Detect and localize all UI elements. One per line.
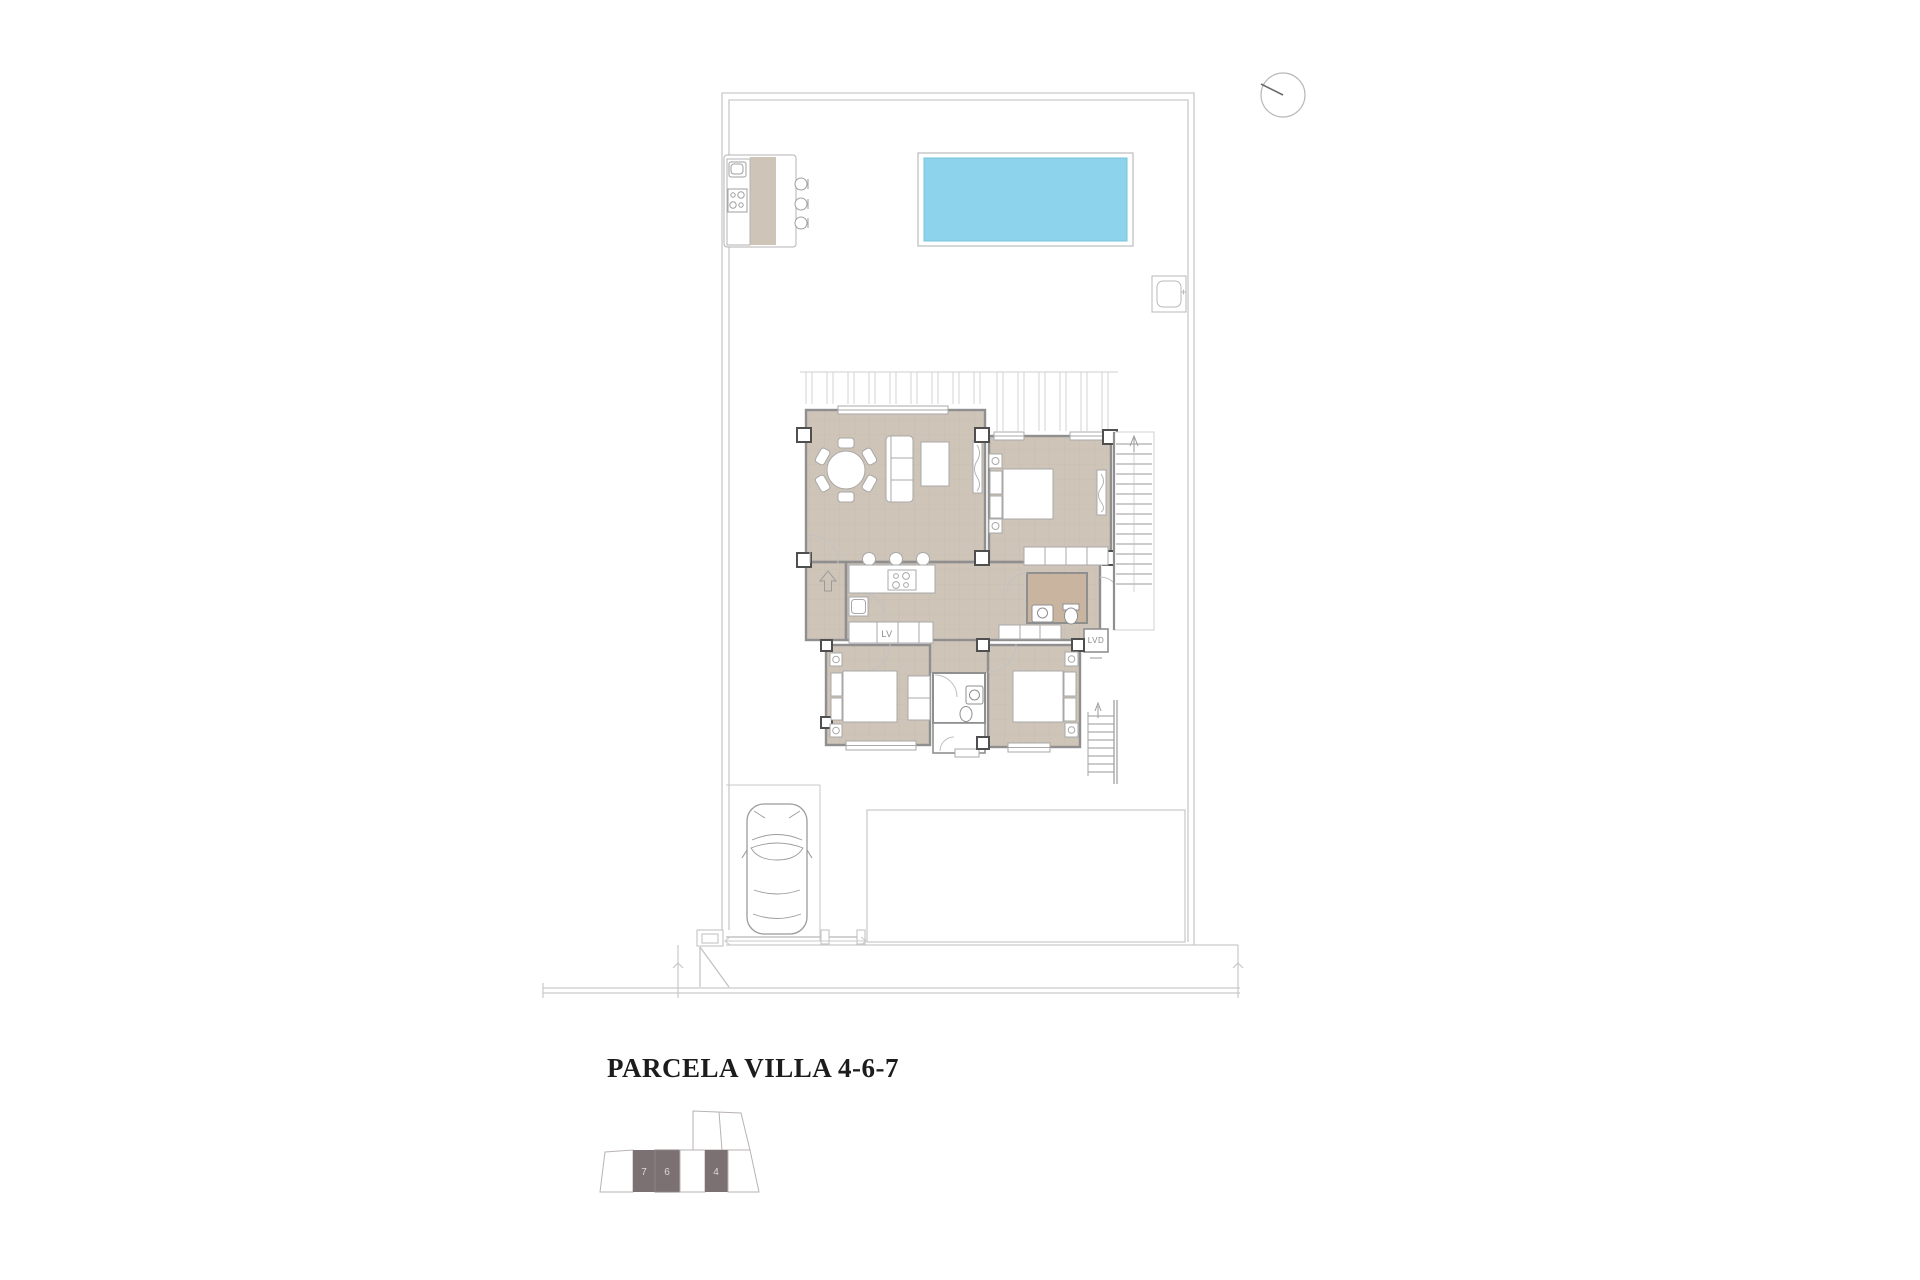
keyplan-plot (728, 1150, 759, 1192)
nightstand (830, 724, 842, 737)
pool-water (924, 158, 1127, 241)
nightstand (1065, 652, 1078, 666)
living-room-right-window (973, 441, 982, 493)
stair-treads (1088, 716, 1114, 772)
dining-chair (838, 492, 854, 502)
parking-area (725, 785, 866, 945)
nightstand (830, 653, 842, 666)
bed-headboard (831, 673, 842, 696)
pillar (977, 737, 989, 749)
cooktop (888, 570, 916, 590)
staircase-garden (1088, 700, 1117, 784)
driveway-gate-swing (700, 947, 729, 987)
washbasin (966, 686, 983, 704)
toilet (960, 707, 972, 722)
pillar (1072, 639, 1084, 651)
nightstand (1065, 723, 1078, 737)
bar-stools (795, 178, 808, 229)
terrace-slab (867, 810, 1185, 942)
bed (1013, 671, 1063, 722)
bed-headboard (831, 698, 842, 720)
bed-headboard (1064, 698, 1076, 721)
bedroom1-right-window (1097, 470, 1106, 515)
living-room-top-window (838, 406, 948, 414)
keyplan-number-4: 4 (713, 1167, 719, 1178)
parking-dimension-line (725, 937, 866, 945)
nightstand (989, 454, 1002, 468)
keyplan-number-6: 6 (664, 1167, 670, 1178)
site-plan-drawing: LV (0, 0, 1920, 1280)
pool (918, 153, 1133, 246)
page-title: PARCELA VILLA 4-6-7 (607, 1053, 899, 1084)
toilet (1065, 608, 1078, 624)
dishwasher-label: LV (881, 629, 892, 639)
dining-chair (838, 438, 854, 448)
stair-side-rail (1114, 700, 1117, 784)
pergola-slats-left (806, 372, 980, 404)
car (742, 804, 812, 934)
pillar (821, 640, 832, 651)
pillar (975, 551, 989, 565)
key-plan: 7 6 4 (600, 1111, 759, 1192)
street-break-left (673, 945, 683, 998)
outdoor-kitchen (724, 155, 808, 247)
nightstand (989, 519, 1002, 533)
tv-unit (921, 442, 949, 486)
bedroom2-bottom-window (846, 741, 916, 750)
keyplan-plot (600, 1150, 633, 1192)
keyplan-plot (680, 1150, 705, 1192)
pillar (797, 428, 811, 442)
bed-headboard (1064, 672, 1076, 696)
equipment-box (1152, 276, 1186, 312)
kitchen-stool (863, 553, 876, 566)
bbq-cooktop (728, 189, 747, 212)
keyplan-number-7: 7 (641, 1167, 647, 1178)
pergola-slats-right (997, 372, 1108, 431)
bed (1003, 469, 1053, 519)
staircase-side (1114, 432, 1154, 630)
pillar (975, 428, 989, 442)
north-indicator-icon (1261, 73, 1305, 117)
car-body (747, 804, 807, 934)
floor-plan-page: LV (0, 0, 1920, 1280)
bed (843, 671, 897, 722)
wardrobe (999, 625, 1061, 639)
pillar (977, 639, 989, 651)
kitchen-stool (917, 553, 930, 566)
sofa (886, 436, 913, 502)
bed-headboard (990, 496, 1002, 518)
street-edge-lines (543, 988, 1240, 993)
street-break-right (1233, 945, 1243, 998)
dining-table (827, 451, 865, 489)
kitchen-stool (890, 553, 903, 566)
pillar (797, 553, 811, 567)
pedestrian-gate-post-left (821, 930, 829, 944)
outdoor-kitchen-island (750, 157, 776, 245)
laundry-label: LVD (1088, 636, 1104, 645)
bed-headboard (990, 471, 1002, 494)
